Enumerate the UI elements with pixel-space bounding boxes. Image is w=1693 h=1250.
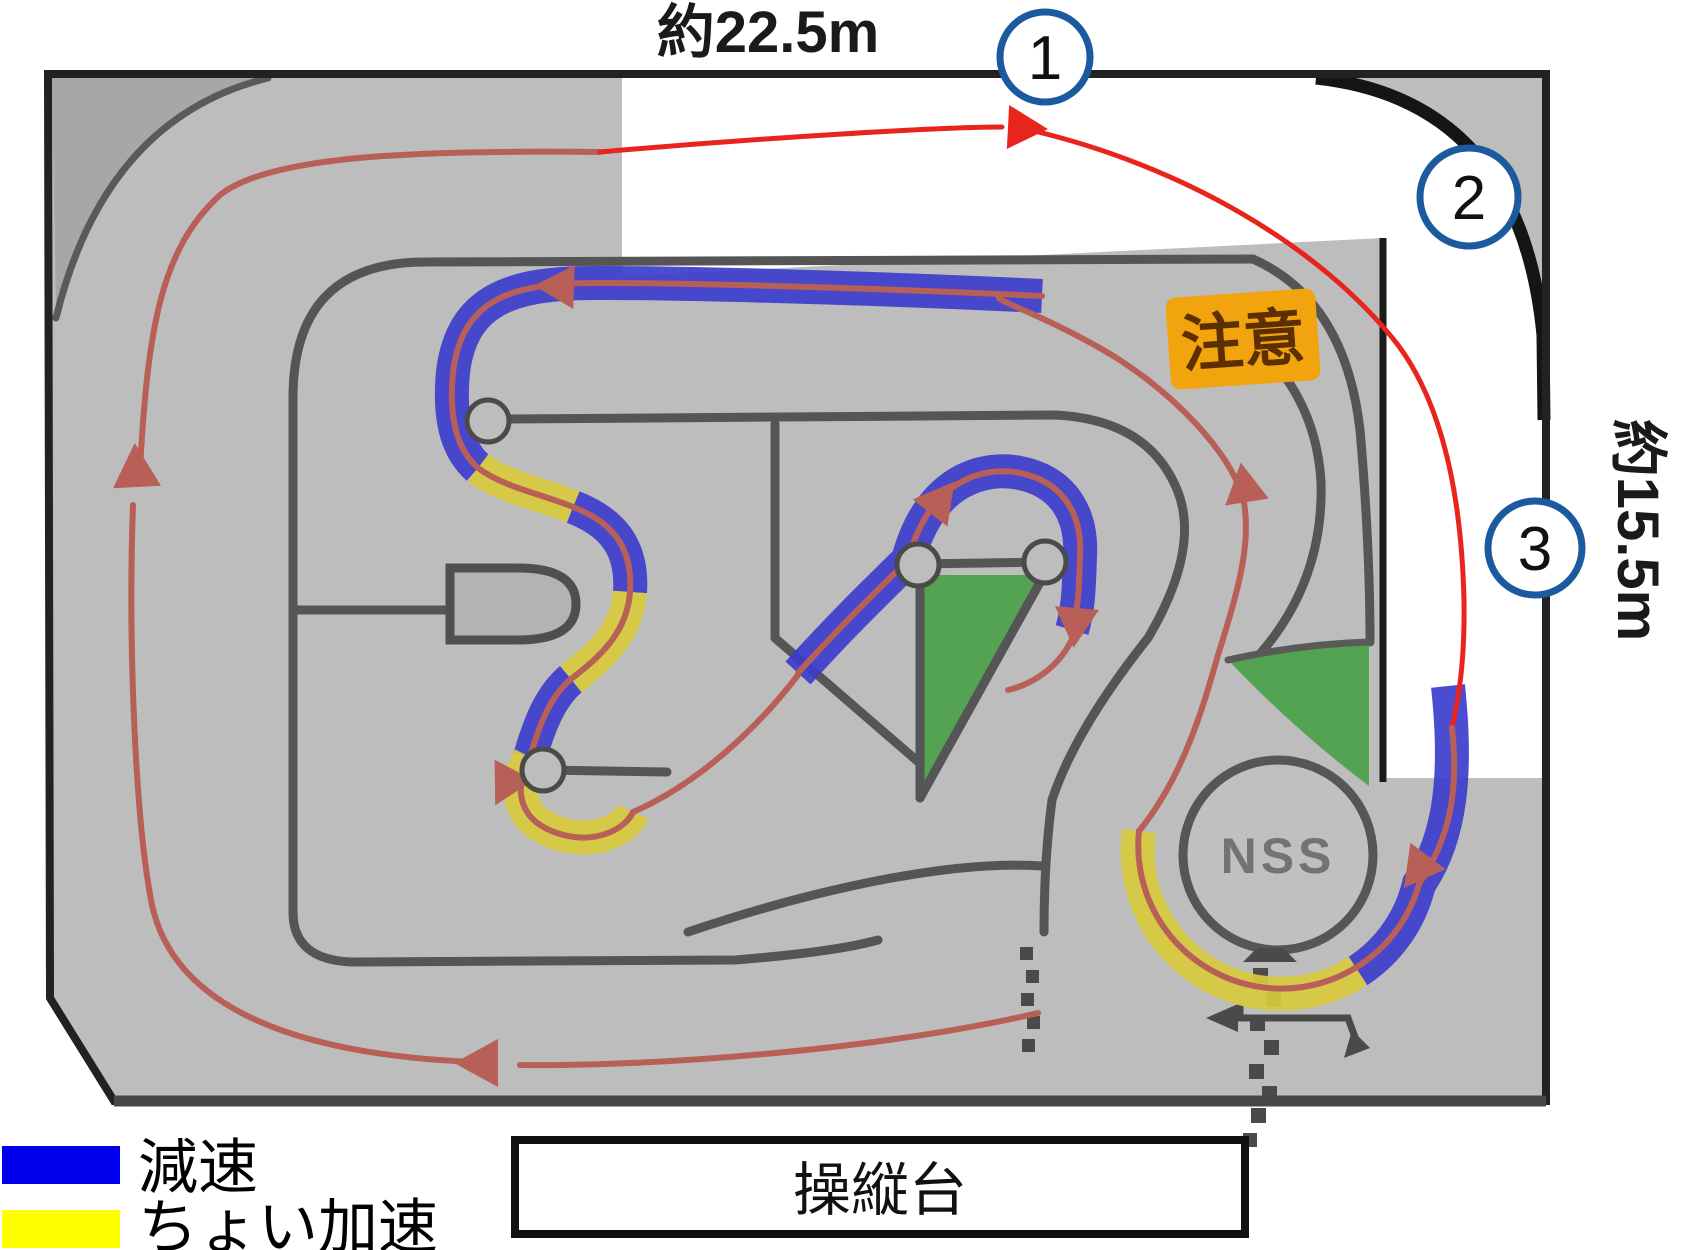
- legend-decel-swatch: [2, 1146, 120, 1184]
- marker-1-badge: 1: [1000, 12, 1090, 102]
- dimension-right-label: 約15.5m: [1605, 419, 1670, 641]
- course-map: NSS: [0, 0, 1693, 1250]
- legend: 減速 ちょい加速: [2, 1134, 438, 1250]
- caution-label: 注意: [1179, 303, 1308, 380]
- marker-3-label: 3: [1518, 515, 1552, 584]
- caution-badge: 注意: [1165, 288, 1321, 390]
- platform-box: 操縦台: [515, 1140, 1245, 1234]
- nss-label: NSS: [1221, 828, 1336, 884]
- pylon-2: [522, 749, 564, 791]
- marker-2-badge: 2: [1420, 148, 1518, 246]
- pylon-3: [897, 544, 939, 586]
- legend-decel-label: 減速: [138, 1134, 258, 1201]
- course-diagram: NSS: [0, 0, 1693, 1250]
- pylon-1: [467, 400, 509, 442]
- marker-2-label: 2: [1452, 164, 1486, 233]
- marker-1-label: 1: [1028, 24, 1062, 93]
- pylon-4: [1024, 541, 1066, 583]
- bulb-obstacle: [450, 568, 576, 640]
- dimension-top-label: 約22.5m: [657, 0, 879, 65]
- legend-accel-swatch: [2, 1210, 120, 1248]
- marker-3-badge: 3: [1488, 501, 1582, 595]
- legend-accel-label: ちょい加速: [138, 1194, 438, 1250]
- platform-label: 操縦台: [793, 1158, 967, 1223]
